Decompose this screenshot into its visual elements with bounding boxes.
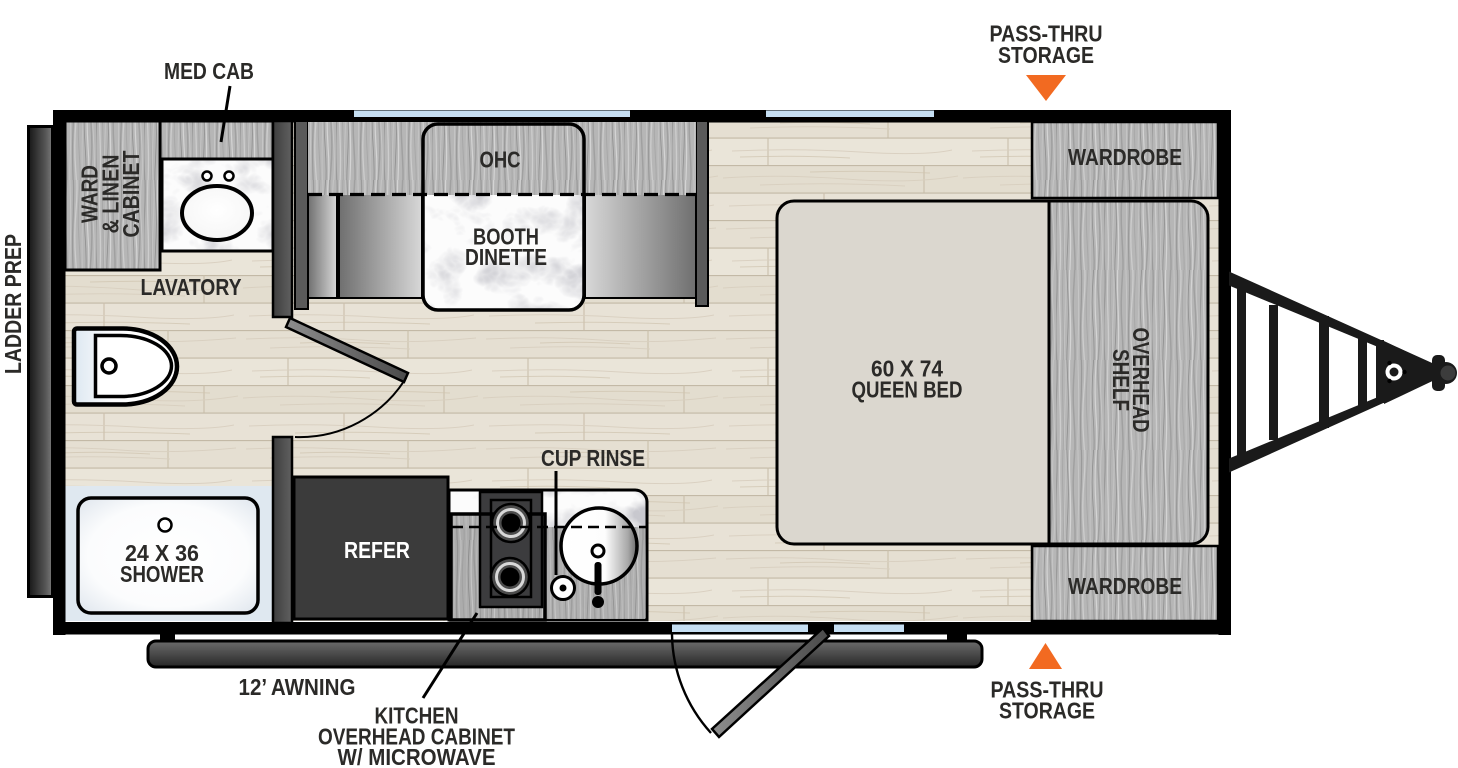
svg-text:MED CAB: MED CAB [164, 58, 254, 84]
svg-text:REFER: REFER [344, 537, 410, 563]
svg-text:LADDER PREP: LADDER PREP [0, 234, 26, 374]
svg-text:CUP RINSE: CUP RINSE [541, 445, 645, 471]
svg-text:BOOTHDINETTE: BOOTHDINETTE [465, 224, 547, 271]
svg-text:PASS-THRUSTORAGE: PASS-THRUSTORAGE [991, 677, 1104, 724]
svg-text:12’ AWNING: 12’ AWNING [239, 674, 356, 700]
svg-text:PASS-THRUSTORAGE: PASS-THRUSTORAGE [990, 21, 1103, 69]
svg-text:LAVATORY: LAVATORY [141, 274, 242, 300]
svg-text:WARDROBE: WARDROBE [1068, 144, 1182, 170]
svg-text:WARDROBE: WARDROBE [1068, 573, 1182, 599]
svg-text:OHC: OHC [480, 147, 521, 173]
svg-text:24 X 36SHOWER: 24 X 36SHOWER [120, 540, 204, 587]
